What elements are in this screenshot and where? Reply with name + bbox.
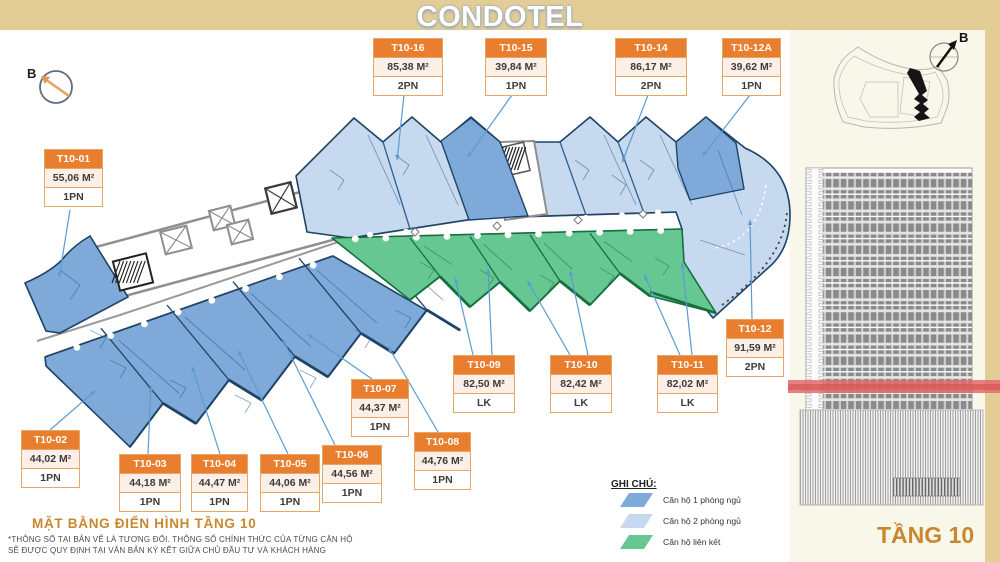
svg-text:B: B	[959, 30, 968, 45]
